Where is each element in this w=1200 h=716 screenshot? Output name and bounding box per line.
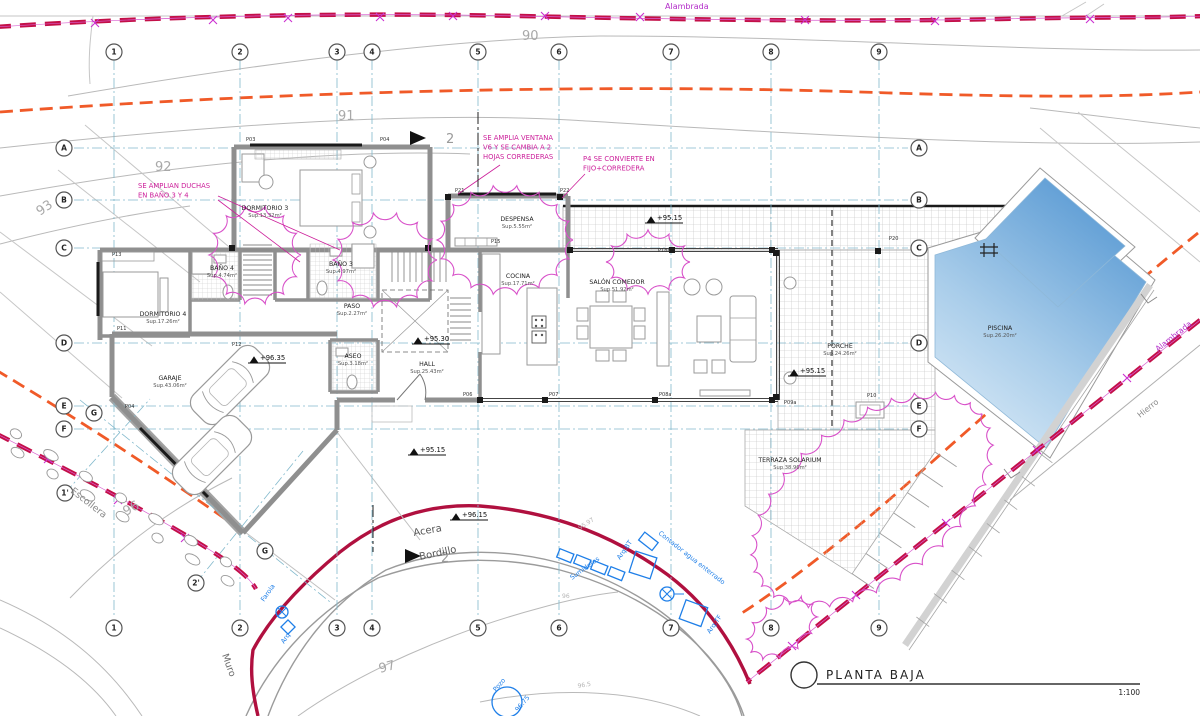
bed — [300, 170, 362, 226]
svg-text:E: E — [61, 402, 66, 411]
svg-text:G: G — [262, 547, 268, 556]
contour-line — [0, 628, 116, 716]
room-name: PISCINA — [988, 325, 1013, 332]
escollera-rock — [45, 467, 60, 481]
door-tag: P12 — [232, 342, 241, 348]
armchair — [684, 279, 700, 295]
room-area: Sup.3.18m² — [338, 361, 368, 367]
fence-post-x — [636, 13, 644, 21]
grid-bubble: B — [911, 192, 927, 208]
svg-text:1': 1' — [61, 489, 69, 498]
contour-label: 93 — [34, 197, 56, 219]
room-area: Sup.17.71m² — [501, 281, 535, 287]
svg-text:5: 5 — [475, 624, 480, 633]
escollera-rock — [150, 531, 165, 545]
arq-box — [281, 620, 295, 634]
room-name: PORCHE — [827, 343, 853, 350]
level-mark: +95.30 — [412, 335, 450, 344]
svg-text:C: C — [916, 244, 922, 253]
room-area: Sup.4.74m² — [207, 273, 237, 279]
svg-text:7: 7 — [668, 48, 673, 57]
orange-dashed-line — [0, 89, 1200, 112]
door-tag: P18a — [658, 248, 670, 254]
room-area: Sup.4.97m² — [326, 269, 356, 275]
terrain-level-label: 96 — [562, 593, 570, 600]
fence-post-x — [788, 642, 796, 650]
pozo-level-label: 96.75 — [513, 694, 531, 713]
sumidero — [608, 567, 625, 581]
room-name: BAÑO 3 — [329, 259, 353, 268]
kitchen-counter — [482, 254, 500, 354]
room-area: Sup.25.43m² — [410, 369, 444, 375]
floor-plan: 123456789123456789ABCDEFABCDEFGG1'2' SE … — [0, 0, 1200, 716]
svg-text:7: 7 — [668, 624, 673, 633]
door-tag: P04 — [125, 404, 134, 410]
svg-text:+95.15: +95.15 — [657, 214, 682, 222]
room-name: COCINA — [506, 273, 531, 280]
escollera-rock — [147, 511, 165, 527]
contour-line — [1030, 108, 1200, 128]
contour-line — [1086, 4, 1104, 16]
alambrada-top-label: Alambrada — [665, 2, 709, 11]
terrain-level-label: 96.5 — [577, 681, 592, 690]
svg-text:9: 9 — [876, 624, 881, 633]
grid-bubble: 2 — [232, 620, 248, 636]
svg-text:F: F — [916, 425, 921, 434]
revision-cloud — [734, 583, 829, 673]
svg-text:D: D — [61, 339, 67, 348]
door-tag: P22 — [560, 188, 569, 194]
room-name: TERRAZA SOLARIUM — [757, 457, 821, 464]
room-name: SALÓN COMEDOR — [589, 277, 645, 286]
armchair — [706, 279, 722, 295]
room-name: HALL — [419, 361, 435, 368]
contour-line — [0, 206, 190, 244]
bordillo-label: Bordillo — [418, 544, 457, 563]
grid-bubble: 8 — [763, 620, 779, 636]
hierro-label: Hierro — [1136, 397, 1161, 419]
svg-text:9: 9 — [876, 48, 881, 57]
svg-text:2': 2' — [192, 579, 200, 588]
svg-text:8: 8 — [768, 48, 773, 57]
pozo-label: Pozo — [491, 677, 507, 694]
grid-bubble: C — [911, 240, 927, 256]
svg-text:F: F — [61, 425, 66, 434]
grid-bubble: A — [911, 140, 927, 156]
grid-bubble: G — [257, 543, 273, 559]
contour-line — [480, 693, 700, 716]
sofa — [730, 296, 756, 362]
grid-bubble: 9 — [871, 620, 887, 636]
contour-line — [1062, 2, 1086, 16]
grid-bubble: B — [56, 192, 72, 208]
acera-label: Acera — [413, 523, 443, 539]
drawing-title: PLANTA BAJA — [826, 668, 926, 682]
svg-text:B: B — [61, 196, 67, 205]
grid-bubble: 1 — [106, 620, 122, 636]
svg-text:4: 4 — [369, 624, 374, 633]
svg-text:+95.15: +95.15 — [800, 367, 825, 375]
dining-table — [590, 306, 632, 348]
svg-text:8: 8 — [768, 624, 773, 633]
door-tag: P21 — [455, 188, 464, 194]
grid-bubble: E — [911, 398, 927, 414]
room-name: DORMITORIO 3 — [242, 205, 289, 212]
floor-plan-canvas: 123456789123456789ABCDEFABCDEFGG1'2' SE … — [0, 0, 1200, 716]
grid-bubble: 4 — [364, 44, 380, 60]
grid-bubble: F — [911, 421, 927, 437]
fence-post-x — [1123, 374, 1131, 382]
room-area: Sup.38.96m² — [773, 465, 807, 471]
revision-annotation: V6 Y SE CAMBIA A 2 — [483, 144, 551, 152]
contour-line — [1078, 112, 1200, 212]
revision-annotation: FIJO+CORREDERA — [583, 165, 645, 173]
grid-bubble: D — [56, 335, 72, 351]
room-name: DORMITORIO 4 — [140, 311, 187, 318]
room-area: Sup.26.20m² — [983, 333, 1017, 339]
svg-text:2: 2 — [237, 48, 242, 57]
svg-text:2: 2 — [237, 624, 242, 633]
contour-line — [0, 600, 142, 716]
svg-text:2: 2 — [446, 132, 454, 147]
grid-bubble: A — [56, 140, 72, 156]
room-area: Sup.24.26m² — [823, 351, 857, 357]
grid-bubble: 1 — [106, 44, 122, 60]
svg-text:3: 3 — [334, 48, 339, 57]
deck-area — [745, 430, 935, 574]
room-name: DESPENSA — [500, 216, 534, 223]
door-tag: P10 — [867, 393, 876, 399]
svg-text:A: A — [61, 144, 67, 153]
door-tag: P08a — [659, 392, 671, 398]
title-bubble — [791, 662, 817, 688]
arq-tf-box — [679, 600, 707, 627]
room-name: GARAJE — [158, 375, 181, 382]
grid-bubble: 2 — [232, 44, 248, 60]
revision-annotation: SE AMPLIAN DUCHAS — [138, 182, 210, 190]
alambrada-right-label: Alambrada — [1154, 319, 1194, 353]
grid-bubble: 6 — [551, 620, 567, 636]
contour-label: 91 — [338, 109, 355, 124]
door-tag: P06 — [463, 392, 472, 398]
grid-bubble: 4 — [364, 620, 380, 636]
svg-text:+96.35: +96.35 — [260, 354, 285, 362]
grid-bubble: 5 — [470, 620, 486, 636]
door-tag: P20 — [889, 236, 898, 242]
svg-text:C: C — [61, 244, 67, 253]
grid-bubble: 2' — [188, 575, 204, 591]
muro-label: Muro — [219, 652, 238, 678]
grid-bubble: G — [86, 405, 102, 421]
grid-bubble: D — [911, 335, 927, 351]
svg-text:E: E — [916, 402, 921, 411]
room-name: PASO — [344, 303, 360, 310]
level-mark: +95.15 — [408, 446, 446, 455]
svg-text:B: B — [916, 196, 922, 205]
grid-bubble: 8 — [763, 44, 779, 60]
door-tag: P04 — [380, 137, 389, 143]
contador-box — [639, 532, 659, 550]
contador-label: Contador agua enterrado — [657, 529, 727, 586]
alambrada-fence — [0, 15, 1200, 27]
contour-line — [298, 592, 618, 716]
room-area: Sup.51.92m² — [600, 287, 634, 293]
svg-text:A: A — [916, 144, 922, 153]
svg-text:G: G — [91, 409, 97, 418]
grid-bubble: C — [56, 240, 72, 256]
room-area: Sup.5.55m² — [502, 224, 532, 230]
grid-bubble: 9 — [871, 44, 887, 60]
drawing-scale: 1:100 — [1118, 688, 1140, 697]
arq-label: Arq — [279, 631, 292, 645]
grid-bubble: 5 — [470, 44, 486, 60]
room-area: Sup.17.26m² — [146, 319, 180, 325]
svg-text:+95.30: +95.30 — [424, 335, 449, 343]
room-name: ASEO — [345, 353, 362, 360]
svg-text:5: 5 — [475, 48, 480, 57]
svg-text:+95.15: +95.15 — [420, 446, 445, 454]
svg-text:6: 6 — [556, 624, 561, 633]
revision-annotation: EN BAÑO 3 Y 4 — [138, 191, 189, 200]
room-name: BAÑO 4 — [210, 263, 234, 272]
grid-bubble: E — [56, 398, 72, 414]
door-tag: P13 — [112, 252, 121, 258]
svg-text:4: 4 — [369, 48, 374, 57]
level-mark: +96.15 — [450, 511, 488, 520]
contour-label: 90 — [522, 29, 539, 44]
revision-annotation: P4 SE CONVIERTE EN — [583, 155, 655, 163]
door-tag: P03 — [246, 137, 255, 143]
entrance-door — [397, 374, 426, 400]
door-tag: P09a — [784, 400, 796, 406]
contour-label: 92 — [155, 160, 172, 175]
svg-text:+96.15: +96.15 — [462, 511, 487, 519]
svg-text:1: 1 — [111, 48, 116, 57]
escollera-rock — [183, 551, 201, 567]
section-marker: 2 — [410, 112, 478, 190]
grid-bubble: 3 — [329, 44, 345, 60]
contour-line — [0, 117, 1200, 148]
grid-bubble: 7 — [663, 44, 679, 60]
svg-text:1: 1 — [111, 624, 116, 633]
escollera-rock — [8, 427, 23, 441]
room-area: Sup.43.06m² — [153, 383, 187, 389]
svg-text:D: D — [916, 339, 922, 348]
grid-bubble: F — [56, 421, 72, 437]
grid-bubble: 3 — [329, 620, 345, 636]
room-area: Sup.13.32m² — [248, 213, 282, 219]
room-area: Sup.2.27m² — [337, 311, 367, 317]
svg-text:3: 3 — [334, 624, 339, 633]
door-tag: P11 — [117, 326, 126, 332]
farola-label: Farola — [259, 583, 277, 604]
grid-bubble: 6 — [551, 44, 567, 60]
door-tag: P07 — [549, 392, 558, 398]
door-tag: P15 — [491, 239, 500, 245]
revision-annotation: SE AMPLIA VENTANA — [483, 134, 553, 142]
escollera-rock — [219, 573, 236, 588]
tv-unit — [657, 292, 669, 366]
revision-annotation: HOJAS CORREDERAS — [483, 153, 553, 161]
svg-text:6: 6 — [556, 48, 561, 57]
grid-bubble: 7 — [663, 620, 679, 636]
